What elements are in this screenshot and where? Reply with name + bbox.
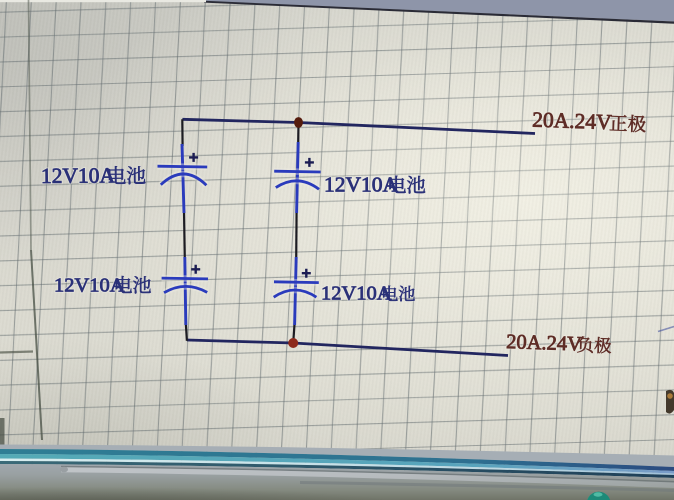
svg-text:20A.24V: 20A.24V [532, 108, 613, 135]
svg-text:12V10A: 12V10A [321, 283, 392, 305]
svg-text:12V10A: 12V10A [54, 275, 125, 297]
svg-text:12V10A: 12V10A [41, 163, 116, 188]
svg-text:20A.24V: 20A.24V [506, 331, 583, 356]
svg-text:12V10A: 12V10A [324, 173, 399, 197]
